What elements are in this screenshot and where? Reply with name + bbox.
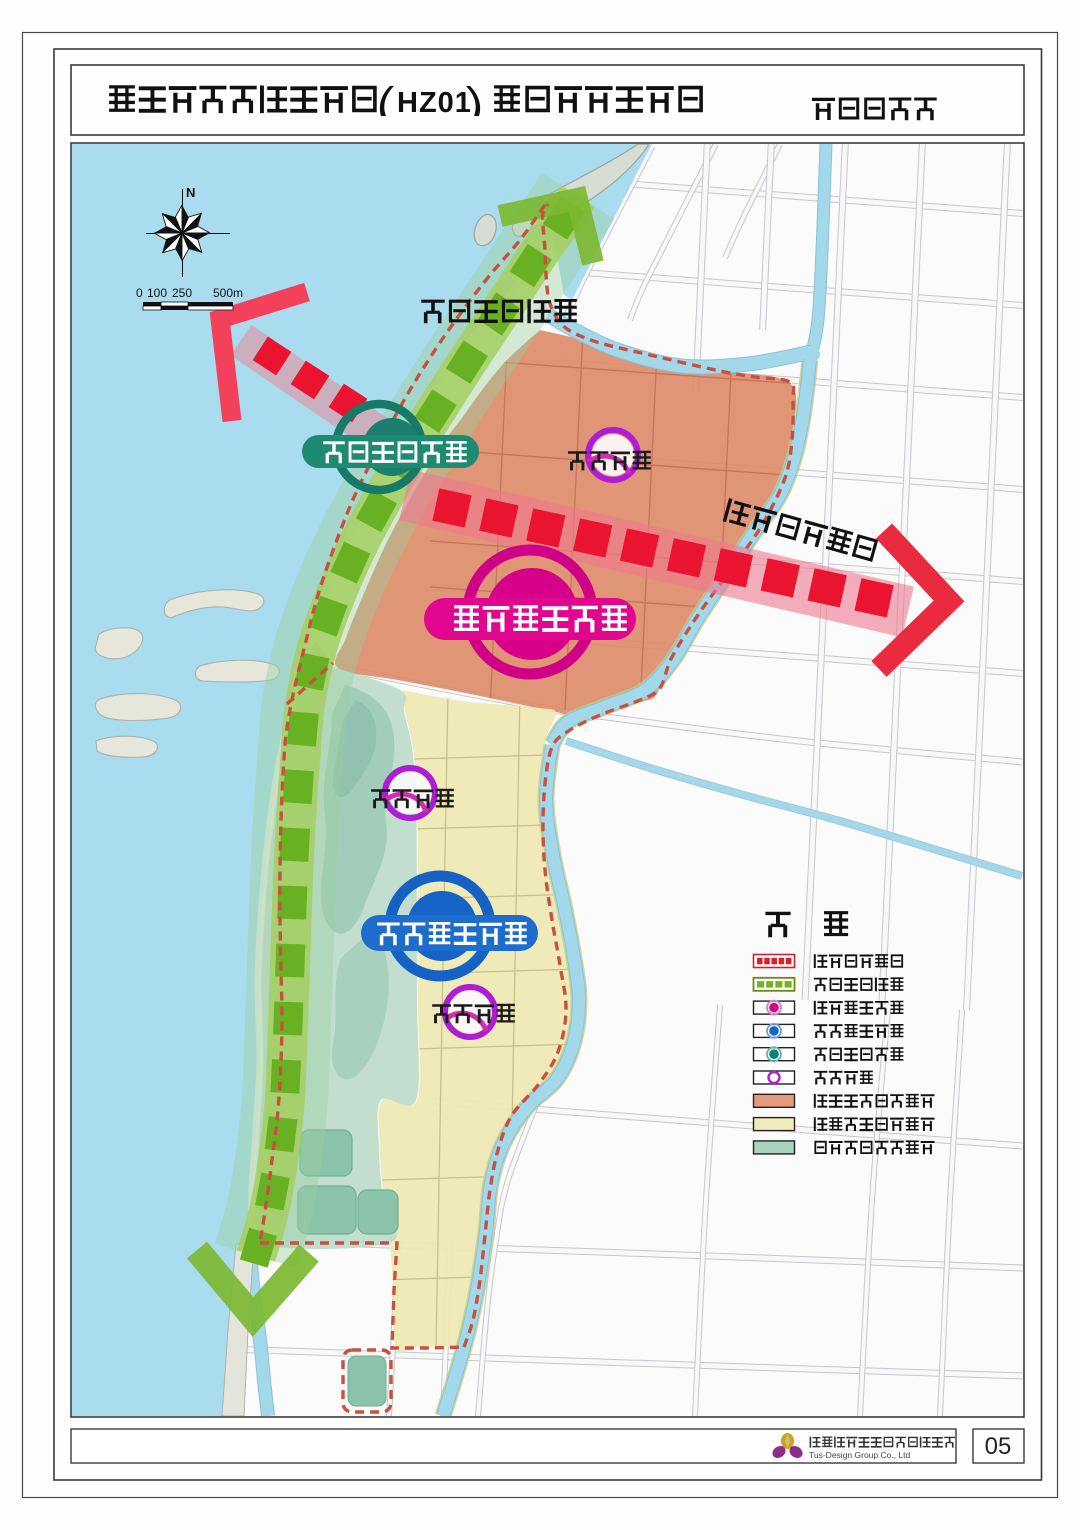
svg-text:HZ01: HZ01 <box>397 87 472 119</box>
svg-text:0: 0 <box>136 286 143 300</box>
svg-text:250: 250 <box>172 286 192 300</box>
svg-text:100: 100 <box>147 286 167 300</box>
svg-text:500m: 500m <box>213 286 243 300</box>
svg-text:Tus-Design Group Co., Ltd: Tus-Design Group Co., Ltd <box>809 1450 911 1460</box>
svg-text:05: 05 <box>985 1433 1012 1460</box>
svg-text:N: N <box>186 185 195 200</box>
